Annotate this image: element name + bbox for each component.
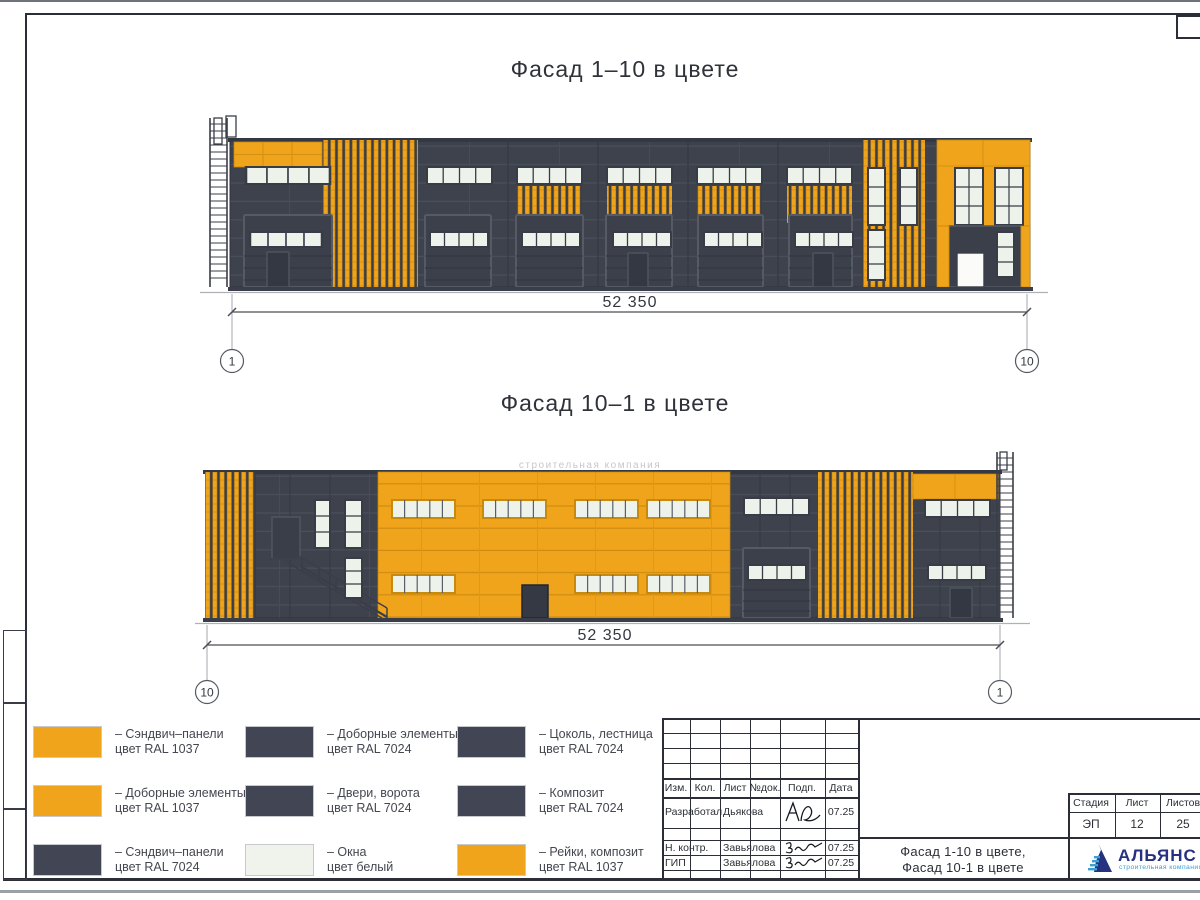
legend-color-code: цвет RAL 1037 [115,801,246,816]
legend-label: – Окна [327,845,393,860]
legend-label: – Цоколь, лестница [539,727,653,742]
tb-header-izm: Изм. [665,782,688,794]
tb-sheet-value: 12 [1130,817,1143,831]
legend-color-code: цвет RAL 1037 [115,742,224,757]
facade1-axis-right: 10 [1020,355,1034,369]
frame-top [25,13,1200,15]
legend-swatch [457,726,526,758]
tb-header-ndok: №док. [750,782,781,794]
legend-item: – Композитцвет RAL 7024 [457,785,669,844]
tb-header-list: Лист [724,782,747,794]
facade-10-1-title: Фасад 10–1 в цвете [190,390,1040,417]
tb-date: 07.25 [828,806,854,818]
facade1-dimension: 52 350 1 10 [221,294,1039,373]
title-block: Изм. Кол. Лист №док. Подп. Дата Разработ… [662,718,1200,878]
legend-label: – Доборные элементы [327,727,458,742]
page-top-edge [0,0,1200,2]
tb-stage-value: ЭП [1082,817,1099,831]
facade2-axis-left: 10 [200,686,214,700]
legend-color-code: цвет RAL 1037 [539,860,644,875]
legend-swatch [245,726,314,758]
legend-swatch [245,785,314,817]
facade2-gate-section [743,498,810,618]
legend-item: – Окнацвет белый [245,844,457,900]
margin-divider [3,702,25,704]
legend-label: – Доборные элементы [115,786,246,801]
tb-header-kol: Кол. [695,782,716,794]
margin-divider [3,808,25,810]
facade2-watermark: строительная компания [519,460,661,471]
company-logo-name: АЛЬЯНС [1118,846,1197,866]
legend-item: – Сэндвич–панелицвет RAL 1037 [33,726,245,785]
facade1-corner-block [937,140,1030,287]
facade2-ground [195,618,1030,624]
legend-label: – Рейки, композит [539,845,644,860]
legend-label: – Сэндвич–панели [115,845,224,860]
company-logo-icon [1085,844,1113,874]
legend-item: – Сэндвич–панелицвет RAL 7024 [33,844,245,900]
tb-role: Разработал [665,806,722,818]
facade1-axis-left: 1 [229,355,236,369]
facade2-dimension: 52 350 10 1 [196,625,1012,704]
legend-color-code: цвет RAL 7024 [327,801,420,816]
tb-name: Завьялова [723,857,775,869]
facade-1-10-title: Фасад 1–10 в цвете [200,56,1050,83]
facade-1-10-drawing: 52 350 1 10 [200,110,1050,380]
facade2-dimension-value: 52 350 [578,627,633,644]
legend-color-code: цвет RAL 7024 [539,742,653,757]
tb-name: Завьялова [723,842,775,854]
tb-sheets-header: Листов [1166,797,1200,809]
legend-item: – Двери, воротацвет RAL 7024 [245,785,457,844]
frame-corner-box [1176,15,1200,39]
legend-swatch [33,785,102,817]
tb-name: Дьякова [723,806,763,818]
legend-item: – Рейки, композитцвет RAL 1037 [457,844,669,900]
legend-swatch [33,844,102,876]
tb-sheet-header: Лист [1126,797,1149,809]
legend-swatch [33,726,102,758]
tb-signature [782,799,824,825]
tb-signature [784,840,824,855]
legend-swatch [457,785,526,817]
legend-item: – Доборные элементыцвет RAL 1037 [33,785,245,844]
tb-doc-title-line1: Фасад 1-10 в цвете, [900,844,1026,859]
legend-label: – Двери, ворота [327,786,420,801]
legend-color-code: цвет белый [327,860,393,875]
facade1-dimension-value: 52 350 [603,294,658,311]
legend-label: – Композит [539,786,624,801]
legend-label: – Сэндвич–панели [115,727,224,742]
facade-10-1-drawing: строительная компания [190,440,1040,710]
tb-stage-header: Стадия [1073,797,1109,809]
tb-role: ГИП [665,857,686,869]
tb-header-data: Дата [829,782,852,794]
facade1-ground [200,287,1048,293]
tb-sheets-value: 25 [1176,817,1189,831]
legend-swatch [457,844,526,876]
color-legend: – Сэндвич–панелицвет RAL 1037 – Доборные… [33,726,669,900]
legend-color-code: цвет RAL 7024 [115,860,224,875]
legend-color-code: цвет RAL 7024 [539,801,624,816]
facade2-axis-right: 1 [997,686,1004,700]
tb-doc-title-line2: Фасад 10-1 в цвете [902,860,1024,875]
tb-header-podp: Подп. [788,782,816,794]
tb-role: Н. контр. [665,842,708,854]
legend-item: – Цоколь, лестницацвет RAL 7024 [457,726,669,785]
legend-color-code: цвет RAL 7024 [327,742,458,757]
drawing-sheet: Фасад 1–10 в цвете Фасад 10–1 в цвете [0,0,1200,900]
tb-date: 07.25 [828,857,854,869]
tb-signature [784,855,824,870]
company-logo-subtitle: строительная компания [1119,864,1200,871]
legend-item: – Доборные элементыцвет RAL 7024 [245,726,457,785]
legend-swatch [245,844,314,876]
margin-boxes [3,630,27,880]
tb-date: 07.25 [828,842,854,854]
